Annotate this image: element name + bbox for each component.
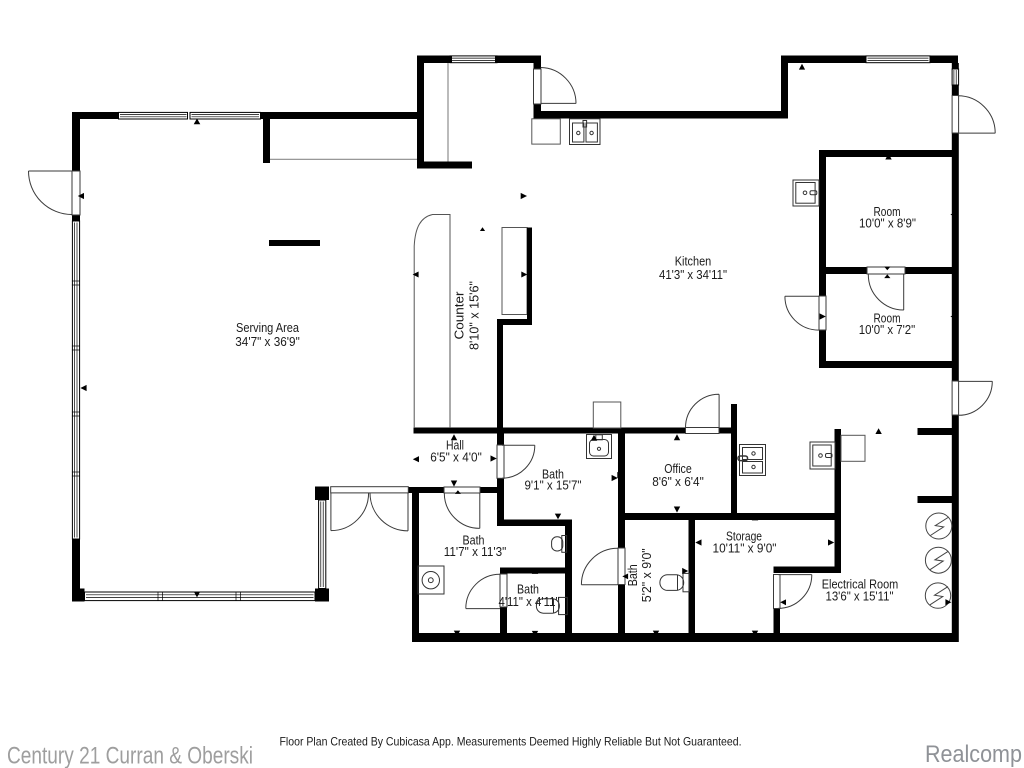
svg-text:6'5" x 4'0": 6'5" x 4'0" xyxy=(430,451,482,465)
svg-text:4'11" x 4'11": 4'11" x 4'11" xyxy=(499,595,560,609)
svg-text:Floor Plan Created By Cubicasa: Floor Plan Created By Cubicasa App. Meas… xyxy=(280,736,742,749)
svg-text:Counter: Counter xyxy=(453,292,467,340)
svg-text:10'11" x 9'0": 10'11" x 9'0" xyxy=(713,542,777,556)
svg-text:34'7" x 36'9": 34'7" x 36'9" xyxy=(235,335,300,349)
svg-text:11'7" x 11'3": 11'7" x 11'3" xyxy=(444,545,507,559)
svg-text:41'3" x 34'11": 41'3" x 34'11" xyxy=(659,268,727,282)
svg-text:10'0" x 8'9": 10'0" x 8'9" xyxy=(859,217,916,231)
svg-text:Century 21 Curran & Oberski: Century 21 Curran & Oberski xyxy=(7,743,253,768)
svg-text:8'6" x 6'4": 8'6" x 6'4" xyxy=(652,475,704,489)
svg-text:Serving Area: Serving Area xyxy=(236,321,299,335)
svg-text:Realcomp: Realcomp xyxy=(925,741,1022,768)
svg-text:10'0" x 7'2": 10'0" x 7'2" xyxy=(859,323,916,337)
svg-text:5'2" x 9'0": 5'2" x 9'0" xyxy=(640,548,654,602)
svg-text:13'6" x 15'11": 13'6" x 15'11" xyxy=(826,590,894,604)
svg-text:Bath: Bath xyxy=(626,564,640,586)
svg-text:9'1" x 15'7": 9'1" x 15'7" xyxy=(525,479,582,493)
svg-text:Kitchen: Kitchen xyxy=(675,255,712,269)
svg-text:8'10" x 15'6": 8'10" x 15'6" xyxy=(468,281,482,350)
svg-text:Office: Office xyxy=(664,462,692,476)
